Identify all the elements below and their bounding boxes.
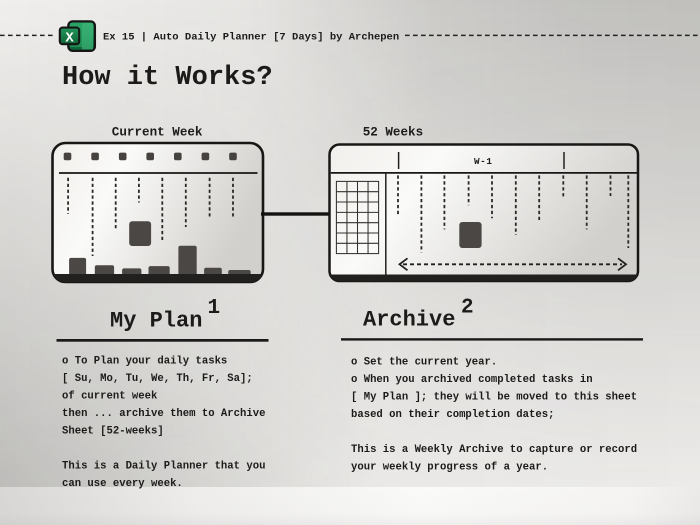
svg-text:This is a Daily Planner that y: This is a Daily Planner that you [62,461,265,473]
svg-text:Archive: Archive [363,308,455,333]
svg-text:X: X [65,31,74,47]
svg-text:then ... archive them to Archi: then ... archive them to Archive [62,408,265,420]
svg-text:o To Plan your daily tasks: o To Plan your daily tasks [62,356,227,368]
svg-text:Ex 15 | Auto Daily Planner [7: Ex 15 | Auto Daily Planner [7 Days] by A… [103,31,399,43]
svg-text:Current Week: Current Week [112,126,203,140]
svg-text:can use every week.: can use every week. [62,478,183,490]
svg-text:52 Weeks: 52 Weeks [363,126,423,140]
svg-text:[ My Plan ]; they will be move: [ My Plan ]; they will be moved to this … [351,392,637,404]
svg-text:Sheet [52-weeks]: Sheet [52-weeks] [62,426,164,438]
svg-text:of current week: of current week [62,391,158,403]
svg-text:How it Works?: How it Works? [62,63,273,93]
svg-text:o When you archived completed: o When you archived completed tasks in [351,374,593,386]
svg-text:o Set the current year.: o Set the current year. [351,357,497,369]
svg-text:1: 1 [208,297,221,320]
svg-text:based on their completion date: based on their completion dates; [351,409,554,421]
svg-text:This is a Weekly Archive to ca: This is a Weekly Archive to capture or r… [351,444,637,456]
svg-text:your weekly progress of a year: your weekly progress of a year. [351,462,548,474]
svg-text:2: 2 [461,296,474,319]
svg-text:My Plan: My Plan [110,309,202,334]
svg-text:W-1: W-1 [474,156,493,167]
svg-text:[ Su, Mo, Tu, We, Th, Fr, Sa];: [ Su, Mo, Tu, We, Th, Fr, Sa]; [62,373,253,385]
